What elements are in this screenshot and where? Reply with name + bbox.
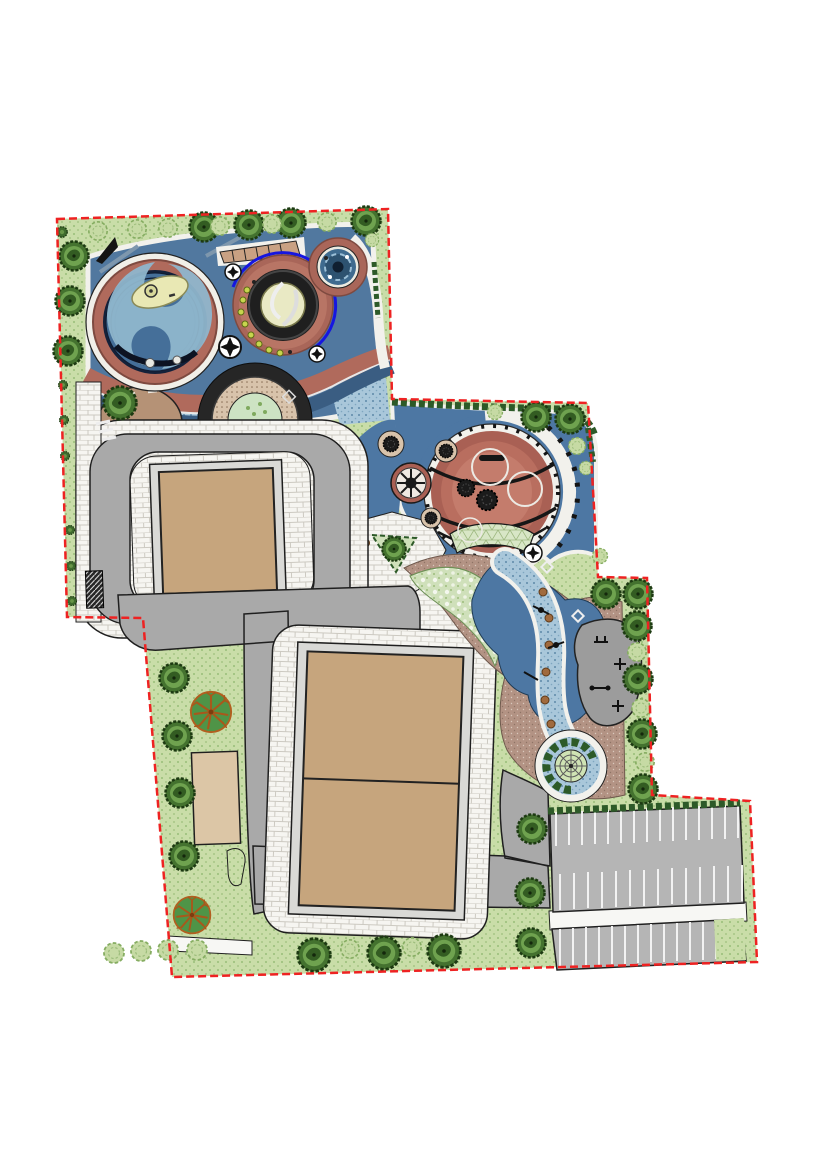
ornamental-tree-1 bbox=[191, 692, 231, 732]
bench-bar-icon bbox=[479, 455, 505, 461]
upper-court bbox=[129, 451, 314, 609]
mandala-paving-circle bbox=[391, 463, 431, 503]
ornamental-tree-2 bbox=[174, 897, 211, 934]
upper-court-surface bbox=[159, 468, 277, 594]
site-plan-page bbox=[0, 0, 828, 1172]
building-footprint bbox=[191, 751, 240, 845]
parking-area bbox=[548, 803, 746, 970]
parking-green-end bbox=[714, 918, 746, 961]
service-structure bbox=[85, 571, 103, 609]
swirl-play-circle bbox=[86, 253, 224, 391]
star-medallion-1 bbox=[225, 264, 241, 280]
spiral-pool-circle bbox=[309, 238, 367, 296]
web-pavilion bbox=[535, 730, 607, 802]
compass-medallion bbox=[219, 336, 241, 358]
lower-courts bbox=[288, 642, 473, 920]
star-medallion-2 bbox=[309, 346, 325, 362]
site-plan-canvas bbox=[0, 0, 828, 1172]
